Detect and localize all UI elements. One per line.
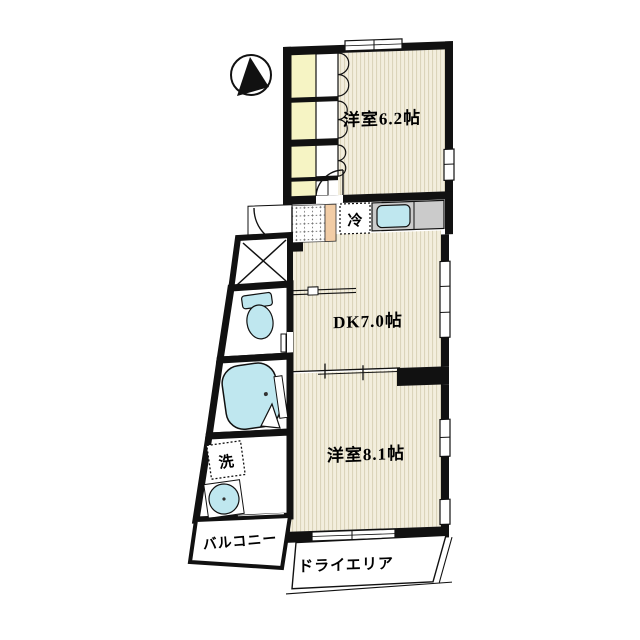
north-arrow-icon — [231, 55, 271, 96]
wall-stub-divider — [397, 366, 449, 386]
room-label-dk: DK7.0帖 — [333, 310, 403, 332]
washing-machine-space: 洗 — [207, 441, 245, 479]
toilet-door — [281, 334, 286, 352]
floor-plan-canvas: 冷 — [0, 0, 640, 640]
wall-left-6-2 — [283, 47, 291, 205]
floor-plan: 冷 — [0, 0, 640, 640]
closet-door-panels — [316, 53, 338, 177]
window — [345, 39, 402, 51]
entrance-tile — [292, 205, 325, 243]
door-gap-6-2 — [316, 195, 343, 204]
wash-basin — [204, 480, 244, 519]
left-wing: 洗 バルコニー — [190, 235, 290, 568]
window — [440, 419, 450, 456]
window — [440, 499, 450, 524]
dry-area-label: ドライエリア — [298, 556, 394, 575]
window — [444, 149, 454, 180]
dk-floor — [290, 230, 441, 371]
closet — [291, 54, 316, 197]
entrance-step — [325, 204, 336, 241]
window — [440, 261, 450, 337]
room-label-bedroom-8-1: 洋室8.1帖 — [327, 443, 405, 466]
refrigerator-label: 冷 — [347, 211, 362, 230]
kitchen-sink — [377, 205, 410, 228]
room-label-bedroom-6-2: 洋室6.2帖 — [343, 107, 421, 130]
wall-right-6-2 — [445, 41, 453, 234]
washing-machine-label: 洗 — [218, 452, 235, 472]
